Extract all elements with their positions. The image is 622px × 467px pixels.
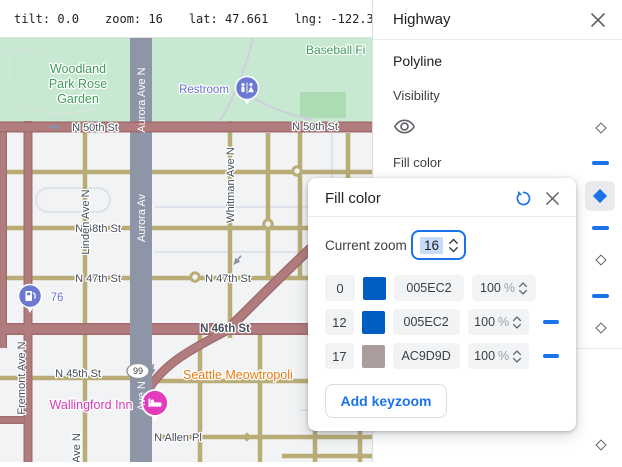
opacity-field[interactable]: 100% <box>468 309 529 335</box>
dialog-header: Fill color <box>308 178 576 216</box>
keyzoom-row: 17 AC9D9D 100% <box>325 343 559 369</box>
keyzoom-diamond-active[interactable] <box>585 181 615 211</box>
keyzoom-level-field[interactable]: 17 <box>325 343 354 369</box>
color-swatch[interactable] <box>363 277 386 300</box>
polyline-section-label: Polyline <box>393 53 442 69</box>
svg-text:Linden Ave N: Linden Ave N <box>80 189 92 254</box>
swatch-fill <box>363 277 386 300</box>
wallingford-inn-label[interactable]: Wallingford Inn <box>50 398 133 412</box>
current-zoom-row: Current zoom 16 <box>325 230 559 260</box>
keyzoom-diamond-icon[interactable] <box>592 438 609 452</box>
svg-text:N Allen Pl: N Allen Pl <box>154 432 202 444</box>
stepper-icon[interactable] <box>448 237 459 254</box>
keyzoom-level-field[interactable]: 0 <box>325 275 355 301</box>
line-swatch-icon <box>592 161 609 165</box>
eye-icon <box>393 115 416 138</box>
tilt-readout: tilt: 0.0 <box>14 12 79 26</box>
swatch-fill <box>362 311 385 334</box>
svg-text:Ave N: Ave N <box>71 433 83 462</box>
keyzoom-diamond-icon[interactable] <box>592 321 609 335</box>
current-zoom-label: Current zoom <box>325 238 411 253</box>
opacity-field[interactable]: 100% <box>468 343 529 369</box>
zoom-readout: zoom: 16 <box>105 12 163 26</box>
hex-color-field[interactable]: 005EC2 <box>393 309 460 335</box>
close-icon <box>590 12 606 28</box>
reset-icon <box>515 190 532 207</box>
svg-text:N 47th St: N 47th St <box>75 273 121 285</box>
route-99-shield: 99 <box>127 364 149 379</box>
camera-readout-bar: tilt: 0.0 zoom: 16 lat: 47.661 lng: -122… <box>0 0 372 38</box>
keyzoom-level-field[interactable]: 12 <box>325 309 354 335</box>
opacity-value: 100 <box>474 315 495 329</box>
dialog-close-button[interactable] <box>545 191 560 206</box>
keyzoom-row: 12 005EC2 100% <box>325 309 559 335</box>
remove-keyzoom-button[interactable] <box>543 354 559 358</box>
close-icon <box>545 191 560 206</box>
svg-text:N 47th St: N 47th St <box>205 273 251 285</box>
current-zoom-input[interactable]: 16 <box>411 230 466 260</box>
svg-text:Whitman Ave N: Whitman Ave N <box>225 147 237 223</box>
color-line-swatch[interactable] <box>592 221 609 235</box>
restroom-label[interactable]: Restroom <box>179 84 229 96</box>
svg-text:Park Rose: Park Rose <box>49 77 107 91</box>
diamond-filled-icon <box>593 189 607 203</box>
svg-text:Aurora Ave N: Aurora Ave N <box>136 67 148 132</box>
dialog-title: Fill color <box>325 190 515 207</box>
visibility-toggle[interactable] <box>393 115 416 138</box>
hex-color-field[interactable]: AC9D9D <box>393 343 460 369</box>
gas-76-label[interactable]: 76 <box>51 292 64 304</box>
svg-text:Woodland: Woodland <box>50 62 106 76</box>
remove-keyzoom-button[interactable] <box>543 320 559 324</box>
svg-text:Garden: Garden <box>57 92 99 106</box>
diamond-outline-icon <box>595 322 606 333</box>
reset-button[interactable] <box>515 190 532 207</box>
diamond-outline-icon <box>595 254 606 265</box>
swatch-fill <box>362 345 385 368</box>
svg-text:Baseball Fi: Baseball Fi <box>306 43 365 57</box>
stepper-icon[interactable] <box>518 281 528 296</box>
visibility-label: Visibility <box>393 88 440 103</box>
fill-color-label: Fill color <box>393 155 441 170</box>
map-ballfield <box>300 92 346 118</box>
panel-title: Highway <box>393 11 590 28</box>
svg-text:N 50th St: N 50th St <box>292 121 338 133</box>
percent-sign: % <box>504 281 515 295</box>
svg-text:N 46th St: N 46th St <box>200 323 250 335</box>
percent-sign: % <box>498 315 509 329</box>
fill-color-dialog: Fill color Current zoom 16 <box>308 178 576 431</box>
svg-text:99: 99 <box>133 366 143 376</box>
opacity-field[interactable]: 100% <box>472 275 536 301</box>
keyzoom-diamond-icon[interactable] <box>592 253 609 267</box>
color-line-swatch[interactable] <box>592 289 609 303</box>
color-swatch[interactable] <box>362 311 385 334</box>
color-swatch[interactable] <box>362 345 385 368</box>
svg-text:N 50th St: N 50th St <box>72 122 118 134</box>
line-swatch-icon <box>592 226 609 230</box>
svg-text:N 45th St: N 45th St <box>55 368 101 380</box>
color-line-swatch[interactable] <box>592 156 609 170</box>
opacity-value: 100 <box>474 349 495 363</box>
panel-close-button[interactable] <box>590 12 606 28</box>
stepper-icon[interactable] <box>512 349 522 364</box>
keyzoom-row: 0 005EC2 100% <box>325 275 559 301</box>
diamond-outline-icon <box>595 439 606 450</box>
current-zoom-value: 16 <box>420 237 443 254</box>
keyzoom-diamond-icon[interactable] <box>592 121 609 135</box>
hex-color-field[interactable]: 005EC2 <box>394 275 464 301</box>
lat-readout: lat: 47.661 <box>189 12 268 26</box>
svg-text:Aurora Av: Aurora Av <box>136 193 148 242</box>
diamond-outline-icon <box>595 122 606 133</box>
svg-text:Fremont Ave N: Fremont Ave N <box>16 341 28 414</box>
percent-sign: % <box>498 349 509 363</box>
svg-text:Ave N: Ave N <box>136 381 148 411</box>
meowtropolis-label[interactable]: Seattle Meowtropoli <box>183 368 293 382</box>
add-keyzoom-button[interactable]: Add keyzoom <box>325 384 447 418</box>
line-swatch-icon <box>592 294 609 298</box>
opacity-value: 100 <box>480 281 501 295</box>
stepper-icon[interactable] <box>512 315 522 330</box>
panel-header: Highway <box>373 0 622 40</box>
